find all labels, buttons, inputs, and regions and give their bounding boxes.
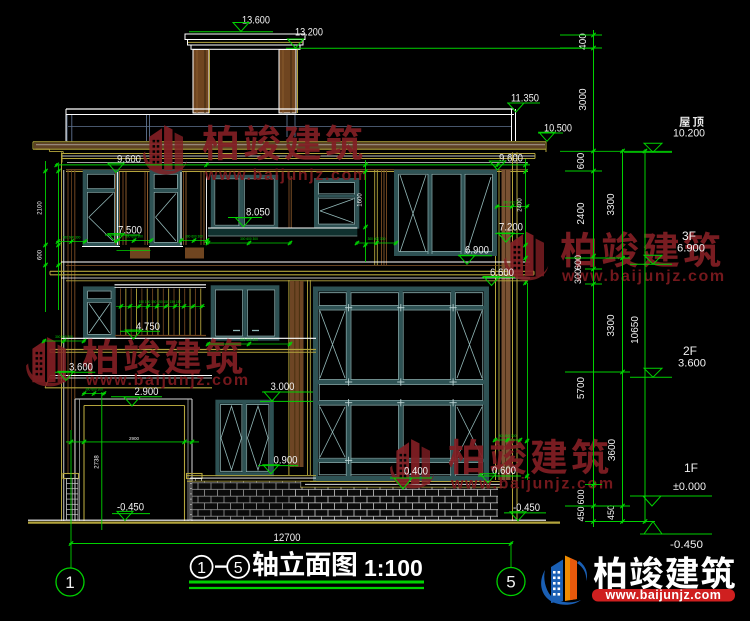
svg-text:2100: 2100 [38, 201, 44, 215]
svg-text:www.baijunjz.com: www.baijunjz.com [450, 476, 615, 493]
svg-text:3000: 3000 [578, 88, 589, 111]
svg-text:1F: 1F [684, 461, 698, 475]
svg-text:www.baijunjz.com: www.baijunjz.com [85, 372, 250, 389]
svg-text:300 600 300: 300 600 300 [368, 237, 386, 241]
svg-text:7.200: 7.200 [499, 222, 523, 234]
svg-text:±0.000: ±0.000 [673, 481, 706, 493]
svg-text:13.200: 13.200 [295, 27, 323, 39]
svg-text:www.baijunjz.com: www.baijunjz.com [605, 588, 722, 602]
svg-text:5700: 5700 [576, 376, 587, 399]
svg-text:0.600: 0.600 [492, 465, 516, 477]
svg-text:3300: 3300 [606, 193, 617, 216]
svg-text:2.900: 2.900 [135, 386, 159, 398]
svg-text:2F: 2F [683, 344, 697, 358]
svg-text:13.600: 13.600 [242, 15, 270, 27]
svg-text:-0.450: -0.450 [670, 539, 703, 551]
svg-text:1:100: 1:100 [364, 555, 423, 581]
svg-text:2400: 2400 [518, 198, 524, 212]
svg-text:6.900: 6.900 [465, 245, 489, 257]
svg-text:600: 600 [576, 489, 586, 504]
svg-text:300 600 300: 300 600 300 [499, 434, 517, 438]
svg-text:10650: 10650 [630, 316, 641, 344]
svg-text:10.200: 10.200 [673, 128, 705, 140]
svg-text:1: 1 [65, 573, 74, 592]
svg-text:2400: 2400 [576, 202, 587, 225]
svg-text:2738: 2738 [95, 455, 101, 469]
svg-text:300 600 300: 300 600 300 [125, 235, 143, 239]
svg-text:300 600 300: 300 600 300 [55, 335, 73, 339]
svg-text:2900: 2900 [129, 436, 140, 441]
svg-text:300 600 300: 300 600 300 [85, 388, 103, 392]
svg-text:450: 450 [606, 505, 616, 520]
svg-text:300 600 300: 300 600 300 [185, 235, 203, 239]
svg-text:3600: 3600 [607, 438, 618, 461]
svg-text:6.900: 6.900 [677, 243, 705, 255]
svg-text:5: 5 [234, 560, 243, 577]
svg-text:300 600 300: 300 600 300 [240, 237, 258, 241]
svg-text:1: 1 [197, 560, 206, 577]
svg-text:300 600 300: 300 600 300 [63, 236, 81, 240]
svg-text:3F: 3F [682, 229, 696, 243]
svg-text:450: 450 [576, 506, 586, 521]
svg-text:1600: 1600 [358, 193, 364, 207]
svg-text:www.baijunjz.com: www.baijunjz.com [204, 167, 369, 184]
svg-text:300 600 300: 300 600 300 [240, 338, 258, 342]
svg-text:600: 600 [573, 255, 583, 270]
svg-text:300: 300 [573, 269, 583, 284]
svg-text:3.600: 3.600 [678, 358, 706, 370]
svg-text:8.050: 8.050 [246, 207, 270, 219]
svg-text:0.400: 0.400 [404, 466, 428, 478]
svg-text:600: 600 [38, 249, 44, 260]
svg-text:150 150 150 150 150 150 150: 150 150 150 150 150 150 150 [139, 300, 182, 304]
svg-text:3300: 3300 [606, 314, 617, 337]
svg-text:12700: 12700 [274, 532, 301, 544]
svg-text:3.000: 3.000 [271, 381, 295, 393]
svg-text:9.600: 9.600 [499, 153, 523, 165]
svg-text:600: 600 [576, 152, 587, 169]
svg-text:www.baijunjz.com: www.baijunjz.com [561, 268, 726, 285]
svg-text:5: 5 [506, 573, 515, 592]
